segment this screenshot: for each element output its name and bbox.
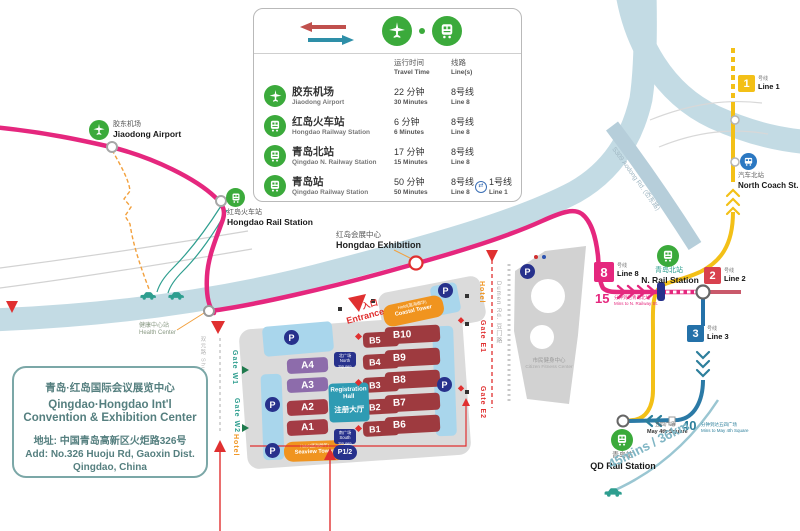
west-exit-arrow <box>214 440 226 452</box>
legend-row-time-cn: 6 分钟 <box>394 117 420 127</box>
parking-icon: P <box>438 283 453 298</box>
dumen-road-label: Dumen Rd. 豆门路 <box>494 281 501 366</box>
line3-badge-number: 3 <box>687 325 704 342</box>
east-tick-e2 <box>465 390 469 394</box>
east-tick-e1 <box>465 322 469 326</box>
note-15-cn: 分钟到达青岛北站 <box>614 295 650 300</box>
legend-row-line2-cn: 1号线 <box>489 177 512 187</box>
fitness-label-en: Citizen Fitness Center <box>518 365 580 371</box>
health-center-label-en: Health Center <box>139 330 176 337</box>
gate-w-down-arrow <box>211 321 225 334</box>
legend-row-line-cn: 8号线 <box>451 117 474 127</box>
venue-addr-en1: Add: No.326 Huoju Rd, Gaoxin Dist. <box>14 449 206 460</box>
jiaodong-label-en: Jiaodong Airport <box>113 130 181 140</box>
legend-row-time-en: 50 Minutes <box>394 189 428 196</box>
venue-title-en2: Convention & Exhibition Center <box>14 412 206 424</box>
line3-badge-en: Line 3 <box>707 332 729 341</box>
hongdao-rail-label-cn: 红岛火车站 <box>227 209 262 217</box>
legend-row-name-cn: 青岛北站 <box>292 146 334 158</box>
legend-dot <box>419 28 425 34</box>
gate-e1-label: Gate E1 <box>478 320 486 362</box>
car-icon <box>603 485 623 503</box>
legend-row-name-en: Jiaodong Airport <box>292 99 344 106</box>
line8-badge-number: 8 <box>594 262 614 282</box>
train-icon <box>432 16 462 46</box>
east-tick-hotel <box>465 294 469 298</box>
note-40-cn: 分钟到达五四广场 <box>701 422 737 427</box>
gate-w1-label: Gate W1 <box>230 350 238 392</box>
fitness-label-cn: 市民健身中心 <box>523 358 575 364</box>
legend-row-line-en: Line 8 <box>451 99 470 106</box>
south-circulation-route <box>250 402 466 446</box>
parking-icon: P <box>437 377 452 392</box>
gate-w1-arrow <box>242 366 249 374</box>
venue-addr-en2: Qingdao, China <box>14 462 206 473</box>
hongdao-rail-label-en: Hongdao Rail Station <box>227 218 313 228</box>
note-15-en: Mins to N. Railway St. <box>614 301 658 306</box>
east-route-arrow <box>486 250 498 262</box>
legend-row-time-en: 30 Minutes <box>394 99 428 106</box>
transit-venue-map: A4 A3 A2 A1 B5 B4 B3 B2 B1 B10 B9 B8 B7 … <box>0 0 800 531</box>
legend-row-time-cn: 17 分钟 <box>394 147 425 157</box>
exhibition-label-cn: 红岛会展中心 <box>336 231 381 240</box>
legend-divider <box>254 53 521 54</box>
parking-icon: P <box>284 330 299 345</box>
nrail-label-en: N. Rail Station <box>635 276 705 286</box>
plane-icon <box>382 16 412 46</box>
note-15-number: 15 <box>595 292 609 307</box>
gate-e2-marker <box>458 385 464 391</box>
jiaodong-airport-icon <box>89 120 109 140</box>
venue-title-en1: Qingdao·Hongdao Int'l <box>14 399 206 411</box>
legend-row-line-en: Line 8 <box>451 159 470 166</box>
hotel-east-label: Hotel <box>477 281 485 313</box>
line3-badge-cn: 号线 <box>707 325 729 332</box>
coach-bus-icon <box>740 153 757 170</box>
line2-badge-en: Line 2 <box>724 274 746 283</box>
parking-icon: P <box>265 397 280 412</box>
gate-w2-arrow <box>242 424 249 432</box>
gate-e2-label: Gate E2 <box>478 386 486 428</box>
coach-label-en: North Coach St. <box>738 181 798 190</box>
legend-col-time-cn: 运行时间 <box>394 59 424 68</box>
south-route-arrow <box>462 398 470 406</box>
line8-badge: 8 号线Line 8 <box>594 262 639 282</box>
plane-icon <box>264 85 286 107</box>
legend-col-line-en: Line(s) <box>451 69 472 76</box>
entrance-tick-1 <box>338 307 342 311</box>
legend-panel: 运行时间 Travel Time 线路 Line(s) 胶东机场 Jiaodon… <box>253 8 522 202</box>
exhibition-label-en: Hongdao Exhibition <box>336 240 421 250</box>
line1-badge-en: Line 1 <box>758 82 780 91</box>
legend-row-line-cn: 8号线 <box>451 147 474 157</box>
line2-badge-cn: 号线 <box>724 267 746 274</box>
hongdao-rail-icon <box>226 188 245 207</box>
gate-e1-marker <box>458 317 464 323</box>
car-icon <box>139 288 157 306</box>
legend-row-name-cn: 青岛站 <box>292 176 324 188</box>
line1-badge-number: 1 <box>738 75 755 92</box>
line2-badge-number: 2 <box>704 267 721 284</box>
parking-icon: P <box>520 264 535 279</box>
legend-col-line-cn: 线路 <box>451 59 466 68</box>
legend-row-line-en: Line 8 <box>451 129 470 136</box>
direction-arrows-icon <box>294 21 358 47</box>
jiaodong-label-cn: 胶东机场 <box>113 121 141 129</box>
legend-row-time-cn: 22 分钟 <box>394 87 425 97</box>
line2-badge: 2 号线Line 2 <box>704 267 746 284</box>
train-icon <box>264 175 286 197</box>
legend-row-line-en: Line 8 <box>451 189 470 196</box>
legend-row-time-cn: 50 分钟 <box>394 177 425 187</box>
parking-icon: P <box>265 443 280 458</box>
line8-badge-en: Line 8 <box>617 269 639 278</box>
venue-info-box: 青岛·红岛国际会议展览中心 Qingdao·Hongdao Int'l Conv… <box>12 366 208 478</box>
car-icon <box>167 288 185 306</box>
legend-row-line-cn: 8号线 <box>451 177 474 187</box>
venue-addr-cn: 地址: 中国青岛高新区火炬路326号 <box>14 432 206 447</box>
legend-row-time-en: 6 Minutes <box>394 129 424 136</box>
legend-row-line2-en: Line 1 <box>489 189 508 196</box>
legend-col-time-en: Travel Time <box>394 69 430 76</box>
legend-row-name-en: Qingdao N. Railway Station <box>292 159 377 166</box>
line1-badge-cn: 号线 <box>758 75 780 82</box>
nrail-station-icon <box>657 245 679 267</box>
legend-row-name-cn: 胶东机场 <box>292 86 334 98</box>
transfer-icon: ⇄ <box>475 181 487 193</box>
coach-label-cn: 汽车北站 <box>738 172 764 179</box>
west-road-arrow <box>6 301 18 313</box>
line3-badge: 3 号线Line 3 <box>687 325 729 342</box>
line1-badge: 1 号线Line 1 <box>738 75 780 92</box>
legend-row-line-cn: 8号线 <box>451 87 474 97</box>
health-center-label-cn: 健康中心站 <box>139 323 169 330</box>
legend-row-name-en: Qingdao Railway Station <box>292 189 368 196</box>
legend-row-name-cn: 红岛火车站 <box>292 116 345 128</box>
note-40-en: Mins to May 4th Square <box>701 428 749 433</box>
hotel-west-label: Hotel <box>231 434 239 466</box>
train-icon <box>264 115 286 137</box>
line8-badge-cn: 号线 <box>617 262 639 269</box>
nrail-label-cn: 青岛北站 <box>646 267 692 275</box>
parking-p12-icon: P1/2 <box>333 445 357 460</box>
legend-row-name-en: Hongdao Railway Station <box>292 129 370 136</box>
legend-row-time-en: 15 Minutes <box>394 159 428 166</box>
train-icon <box>264 145 286 167</box>
venue-title-cn: 青岛·红岛国际会议展览中心 <box>14 380 206 395</box>
